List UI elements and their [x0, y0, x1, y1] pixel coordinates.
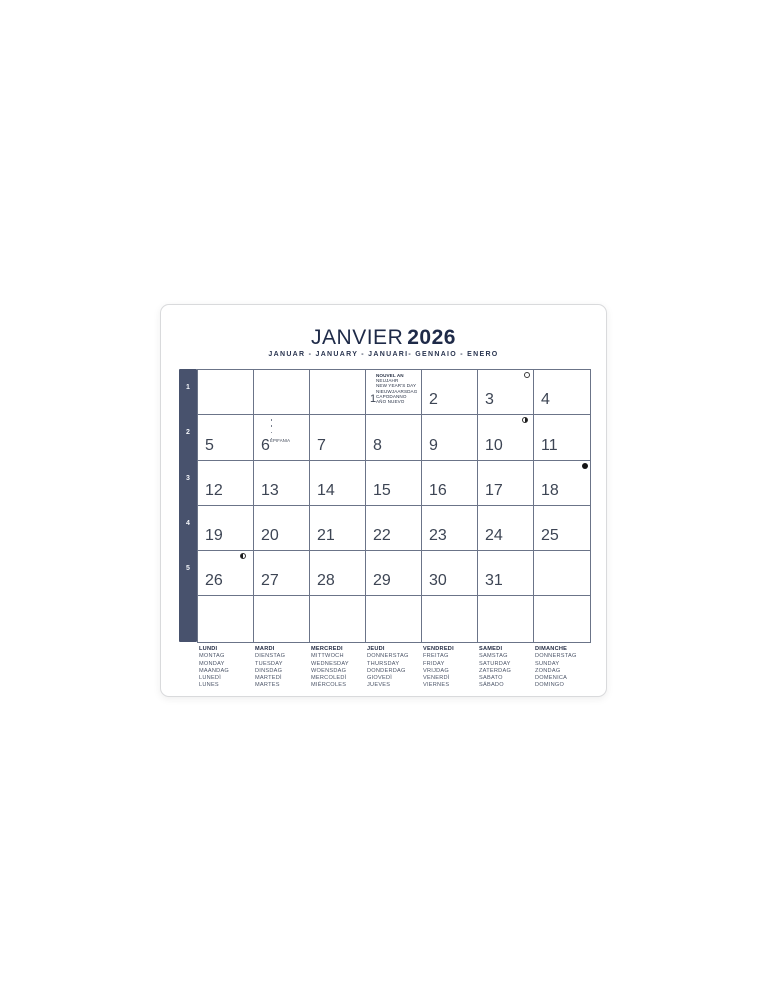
weekday-name-primary: LUNDI — [199, 646, 254, 653]
calendar-cell — [534, 551, 590, 596]
calendar-cell: 22 — [366, 506, 422, 551]
calendar-cell: 18 — [534, 461, 590, 506]
date-number: 2 — [429, 392, 438, 408]
weekday-name-translation: SUNDAY — [535, 661, 590, 668]
weekday-name-translation: VENERDÌ — [423, 675, 478, 682]
product-page: JANVIER2026 JANUAR - JANUARY - JANUARI- … — [0, 0, 771, 1000]
date-number: 7 — [317, 438, 326, 454]
date-number: 4 — [541, 392, 550, 408]
week-number: 4 — [179, 520, 197, 528]
calendar-cell: 19 — [198, 506, 254, 551]
epiphany-note-marks — [271, 419, 272, 439]
calendar-cell: 10 — [478, 415, 534, 460]
calendar-cell: 12 — [198, 461, 254, 506]
date-number: 6 — [261, 438, 270, 454]
weekday-name-primary: SAMEDI — [479, 646, 534, 653]
week-number-column: 12345 — [179, 369, 197, 642]
weekday-name-primary: MERCREDI — [311, 646, 366, 653]
date-number: 23 — [429, 528, 447, 544]
calendar-cell — [254, 370, 310, 415]
weekday-name-primary: DIMANCHE — [535, 646, 590, 653]
calendar-cell — [198, 370, 254, 415]
calendar-cell: 3 — [478, 370, 534, 415]
date-number: 27 — [261, 573, 279, 589]
weekday-name-primary: MARDI — [255, 646, 310, 653]
weekday-name-translation: JUEVES — [367, 682, 422, 689]
weekday-column: SAMEDISAMSTAGSATURDAYZATERDAGSABATOSÁBAD… — [479, 646, 534, 690]
calendar-cell: 25 — [534, 506, 590, 551]
calendar-cell: 27 — [254, 551, 310, 596]
calendar-cell — [254, 596, 310, 641]
calendar-cell: 6EPIFANIA — [254, 415, 310, 460]
date-number: 21 — [317, 528, 335, 544]
weekday-column: VENDREDIFREITAGFRIDAYVRIJDAGVENERDÌVIERN… — [423, 646, 478, 690]
calendar-cell: 9 — [422, 415, 478, 460]
weekday-name-translation: LUNEDÌ — [199, 675, 254, 682]
weekday-name-translation: ZATERDAG — [479, 668, 534, 675]
weekday-name-translation: VIERNES — [423, 682, 478, 689]
weekday-column: DIMANCHEDONNERSTAGSUNDAYZONDAGDOMENICADO… — [535, 646, 590, 690]
calendar-cell: 4 — [534, 370, 590, 415]
date-number: 18 — [541, 483, 559, 499]
full-moon-icon — [524, 372, 530, 378]
date-number: 28 — [317, 573, 335, 589]
date-number: 9 — [429, 438, 438, 454]
date-number: 31 — [485, 573, 503, 589]
weekday-legend: LUNDIMONTAGMONDAYMAANDAGLUNEDÌLUNESMARDI… — [161, 646, 606, 696]
calendar-cell: 8 — [366, 415, 422, 460]
weekday-name-translation: SÁBADO — [479, 682, 534, 689]
weekday-column: MERCREDIMITTWOCHWEDNESDAYWOENSDAGMERCOLE… — [311, 646, 366, 690]
date-number: 5 — [205, 438, 214, 454]
calendar-cell: 15 — [366, 461, 422, 506]
calendar-cell: 1NOUVEL ANNEUJAHRNEW YEAR'S DAYNIEUWJAAR… — [366, 370, 422, 415]
weekday-name-translation: FRIDAY — [423, 661, 478, 668]
date-number: 13 — [261, 483, 279, 499]
calendar-cell: 26 — [198, 551, 254, 596]
week-number: 5 — [179, 565, 197, 573]
weekday-name-translation: MONDAY — [199, 661, 254, 668]
calendar-cell: 30 — [422, 551, 478, 596]
first-quarter-moon-icon — [240, 553, 246, 559]
date-number: 10 — [485, 438, 503, 454]
calendar-cell: 5 — [198, 415, 254, 460]
weekday-name-translation: DONNERSTAG — [535, 653, 590, 660]
year-label: 2026 — [407, 326, 456, 349]
calendar-cell — [422, 596, 478, 641]
weekday-name-translation: MITTWOCH — [311, 653, 366, 660]
last-quarter-moon-icon — [522, 417, 528, 423]
calendar-cell: 24 — [478, 506, 534, 551]
new-moon-icon — [582, 463, 588, 469]
date-number: 12 — [205, 483, 223, 499]
date-number: 26 — [205, 573, 223, 589]
calendar-cell — [366, 596, 422, 641]
week-number: 3 — [179, 475, 197, 483]
calendar-cell — [310, 370, 366, 415]
calendar-cell: 7 — [310, 415, 366, 460]
weekday-column: JEUDIDONNERSTAGTHURSDAYDONDERDAGGIOVEDÌJ… — [367, 646, 422, 690]
date-number: 3 — [485, 392, 494, 408]
calendar-header: JANVIER2026 JANUAR - JANUARY - JANUARI- … — [161, 327, 606, 358]
calendar-cell: 23 — [422, 506, 478, 551]
weekday-name-translation: TUESDAY — [255, 661, 310, 668]
calendar-sheet: JANVIER2026 JANUAR - JANUARY - JANUARI- … — [160, 304, 607, 697]
date-number: 20 — [261, 528, 279, 544]
calendar-grid: 1NOUVEL ANNEUJAHRNEW YEAR'S DAYNIEUWJAAR… — [197, 369, 591, 643]
weekday-name-translation: GIOVEDÌ — [367, 675, 422, 682]
calendar-cell: 16 — [422, 461, 478, 506]
month-translations: JANUAR - JANUARY - JANUARI- GENNAIO - EN… — [161, 351, 606, 358]
week-number: 1 — [179, 384, 197, 392]
date-number: 17 — [485, 483, 503, 499]
weekday-name-translation: MARTES — [255, 682, 310, 689]
date-number: 29 — [373, 573, 391, 589]
week-number: 2 — [179, 429, 197, 437]
weekday-name-translation: MIÉRCOLES — [311, 682, 366, 689]
date-number: 19 — [205, 528, 223, 544]
weekday-name-translation: SATURDAY — [479, 661, 534, 668]
date-number: 8 — [373, 438, 382, 454]
date-number: 25 — [541, 528, 559, 544]
calendar-cell: 17 — [478, 461, 534, 506]
page-title: JANVIER2026 — [161, 327, 606, 349]
date-number: 11 — [541, 438, 558, 454]
month-name: JANVIER — [311, 326, 403, 349]
weekday-name-translation: LUNES — [199, 682, 254, 689]
weekday-name-translation: DOMINGO — [535, 682, 590, 689]
weekday-column: LUNDIMONTAGMONDAYMAANDAGLUNEDÌLUNES — [199, 646, 254, 690]
weekday-name-translation: DIENSTAG — [255, 653, 310, 660]
weekday-name-translation: DONNERSTAG — [367, 653, 422, 660]
weekday-name-translation: DOMENICA — [535, 675, 590, 682]
calendar-cell — [198, 596, 254, 641]
calendar-cell: 28 — [310, 551, 366, 596]
weekday-column: MARDIDIENSTAGTUESDAYDINSDAGMARTEDÌMARTES — [255, 646, 310, 690]
calendar-cell: 21 — [310, 506, 366, 551]
calendar-cell: 11 — [534, 415, 590, 460]
weekday-name-primary: JEUDI — [367, 646, 422, 653]
calendar-cell: 13 — [254, 461, 310, 506]
weekday-name-translation: MONTAG — [199, 653, 254, 660]
calendar-cell: 2 — [422, 370, 478, 415]
date-number: 16 — [429, 483, 447, 499]
weekday-name-primary: VENDREDI — [423, 646, 478, 653]
weekday-name-translation: THURSDAY — [367, 661, 422, 668]
calendar-cell — [478, 596, 534, 641]
calendar-cell: 20 — [254, 506, 310, 551]
weekday-name-translation: FREITAG — [423, 653, 478, 660]
calendar-cell: 14 — [310, 461, 366, 506]
new-years-day-note: NOUVEL ANNEUJAHRNEW YEAR'S DAYNIEUWJAARS… — [376, 373, 417, 404]
holiday-line: AÑO NUEVO — [376, 399, 417, 404]
date-number: 24 — [485, 528, 503, 544]
date-number: 22 — [373, 528, 391, 544]
date-number: 15 — [373, 483, 391, 499]
calendar-cell — [310, 596, 366, 641]
holiday-line: NEW YEAR'S DAY — [376, 383, 417, 388]
calendar-cell: 31 — [478, 551, 534, 596]
date-number: 30 — [429, 573, 447, 589]
date-number: 14 — [317, 483, 335, 499]
weekday-name-translation: SAMSTAG — [479, 653, 534, 660]
weekday-name-translation: WEDNESDAY — [311, 661, 366, 668]
calendar-cell — [534, 596, 590, 641]
calendar-cell: 29 — [366, 551, 422, 596]
weekday-name-translation: ZONDAG — [535, 668, 590, 675]
weekday-name-translation: MARTEDÌ — [255, 675, 310, 682]
epiphany-note-label: EPIFANIA — [270, 438, 290, 443]
